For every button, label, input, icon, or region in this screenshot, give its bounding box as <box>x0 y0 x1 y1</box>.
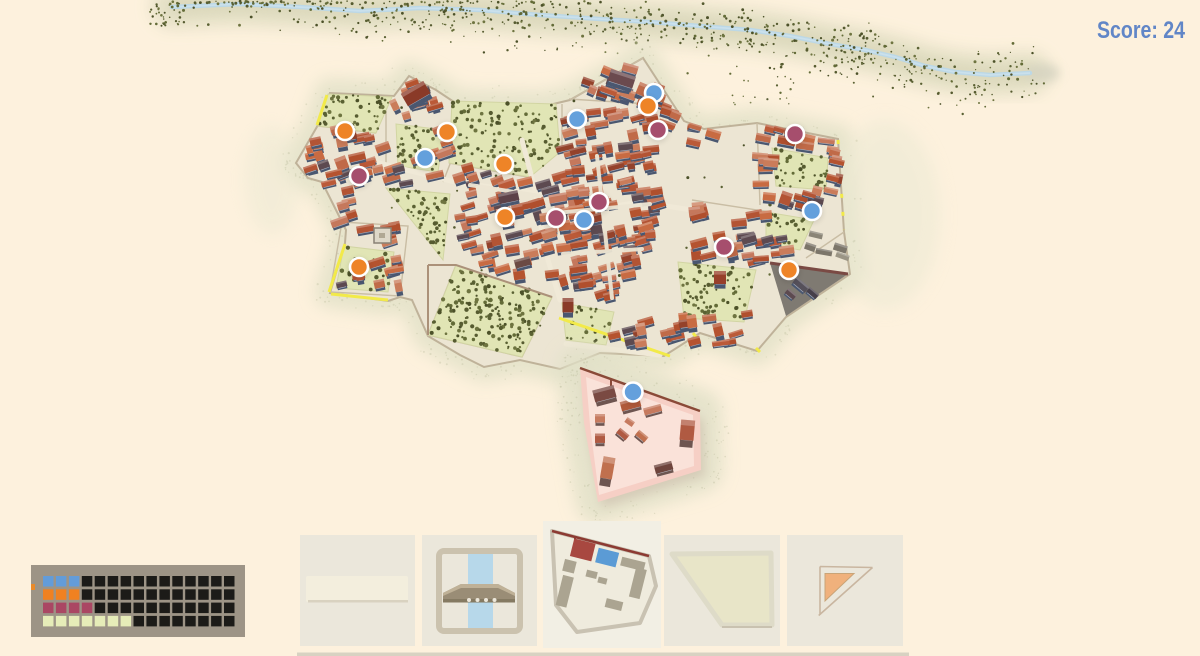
svg-text:Score: 24: Score: 24 <box>1097 17 1186 44</box>
